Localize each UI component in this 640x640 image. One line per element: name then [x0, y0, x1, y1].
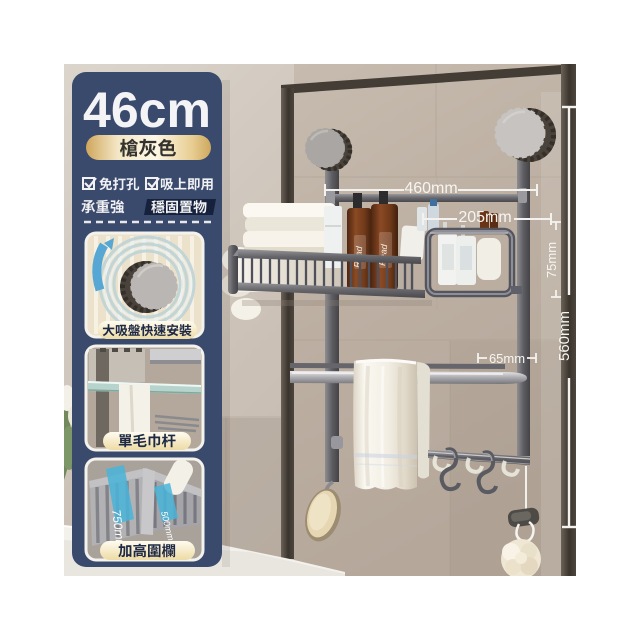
svg-text:46cm: 46cm	[83, 82, 211, 138]
svg-text:75mm: 75mm	[544, 242, 559, 278]
svg-text:65mm: 65mm	[489, 351, 525, 366]
svg-text:205mm: 205mm	[458, 209, 511, 226]
svg-text:560mm: 560mm	[556, 311, 573, 361]
svg-text:460mm: 460mm	[404, 180, 457, 197]
